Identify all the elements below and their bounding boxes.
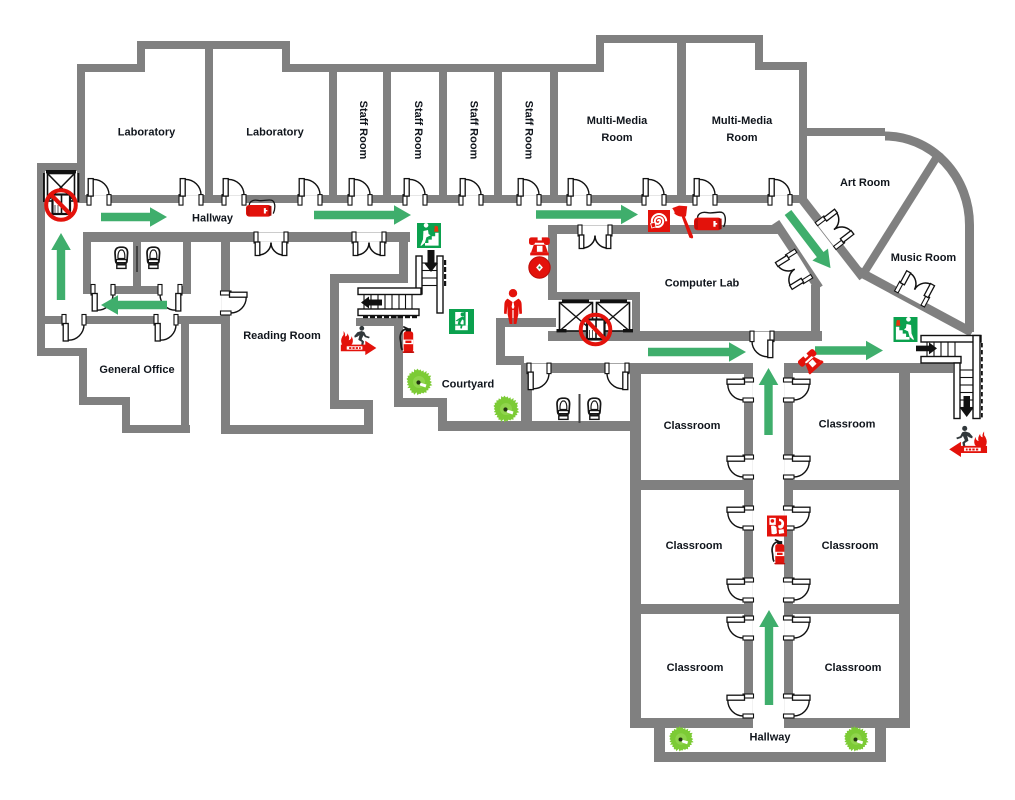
- svg-text:Hallway: Hallway: [750, 732, 792, 744]
- svg-text:Staff Room: Staff Room: [523, 101, 535, 160]
- svg-text:Classroom: Classroom: [666, 540, 723, 552]
- svg-text:Classroom: Classroom: [825, 662, 882, 674]
- svg-text:Reading Room: Reading Room: [243, 330, 321, 342]
- svg-text:Laboratory: Laboratory: [246, 127, 304, 139]
- svg-text:Music Room: Music Room: [891, 252, 957, 264]
- svg-text:Staff Room: Staff Room: [468, 101, 480, 160]
- svg-text:Staff Room: Staff Room: [412, 101, 424, 160]
- svg-text:Multi-Media: Multi-Media: [587, 115, 648, 127]
- svg-text:Classroom: Classroom: [667, 662, 724, 674]
- svg-text:General Office: General Office: [99, 364, 174, 376]
- svg-text:Classroom: Classroom: [664, 420, 721, 432]
- svg-text:Multi-Media: Multi-Media: [712, 115, 773, 127]
- svg-text:Computer Lab: Computer Lab: [665, 278, 740, 290]
- svg-text:Staff Room: Staff Room: [357, 101, 369, 160]
- svg-text:Hallway: Hallway: [192, 213, 234, 225]
- svg-text:Classroom: Classroom: [819, 419, 876, 431]
- svg-text:Room: Room: [726, 132, 757, 144]
- svg-text:Room: Room: [601, 132, 632, 144]
- svg-text:Classroom: Classroom: [822, 540, 879, 552]
- svg-text:Art Room: Art Room: [840, 177, 890, 189]
- svg-text:Courtyard: Courtyard: [442, 379, 495, 391]
- svg-text:Laboratory: Laboratory: [118, 127, 176, 139]
